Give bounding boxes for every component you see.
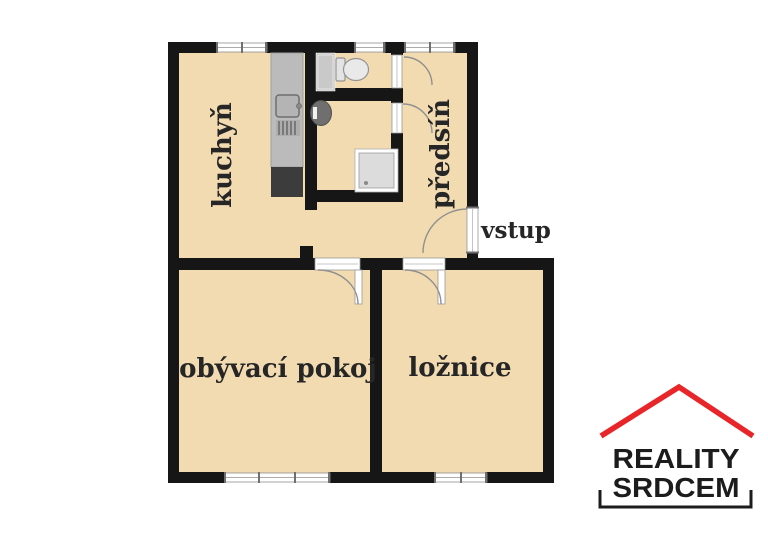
- room-label-living-room: obývací pokoj: [179, 354, 377, 384]
- entrance-label: vstup: [480, 217, 551, 244]
- floor-plan-svg: kuchyň předsíň obývací pokoj ložnice vst…: [0, 0, 768, 552]
- floor-plan-canvas: kuchyň předsíň obývací pokoj ložnice vst…: [0, 0, 768, 552]
- window-hallway: [404, 42, 455, 53]
- fridge-icon: [271, 167, 303, 197]
- drainer-icon: [276, 120, 300, 136]
- window-bedroom: [434, 472, 487, 483]
- logo-wordmark: REALITY SRDCEM: [613, 443, 740, 503]
- washing-machine-icon: [317, 54, 334, 90]
- room-label-hallway: předsíň: [426, 99, 456, 209]
- room-label-bedroom: ložnice: [408, 353, 511, 383]
- room-label-kitchen: kuchyň: [208, 102, 238, 208]
- logo-line1: REALITY: [613, 443, 740, 474]
- logo-line2: SRDCEM: [613, 472, 740, 503]
- shower-icon: [355, 149, 398, 192]
- kitchen-counter: [271, 53, 303, 197]
- window-living-room: [224, 472, 330, 483]
- toilet-icon: [336, 58, 369, 81]
- window-kitchen: [216, 42, 267, 53]
- stove-icon: [276, 95, 302, 117]
- logo: REALITY SRDCEM: [600, 387, 753, 507]
- logo-roof-icon: [601, 387, 753, 436]
- sink-icon: [311, 101, 332, 126]
- window-wc: [354, 42, 385, 53]
